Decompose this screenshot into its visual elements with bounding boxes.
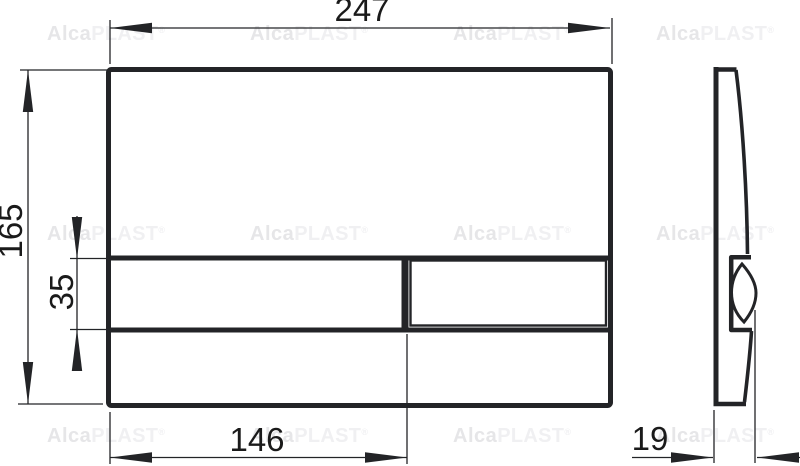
arrow-right (365, 452, 407, 462)
side-view (714, 67, 757, 406)
arrow-left-inward (757, 452, 799, 462)
plate-outline (109, 70, 611, 406)
side-button-bulge (732, 264, 757, 322)
dim-button-width-label: 146 (229, 421, 284, 458)
side-face-upper (736, 70, 748, 254)
dim-width-label: 247 (334, 0, 389, 28)
arrow-down (72, 217, 82, 259)
dimension-band-height: 35 (43, 216, 106, 371)
small-button-outline (411, 261, 607, 326)
arrow-up (72, 329, 82, 371)
dimension-button-width: 146 (110, 334, 407, 464)
arrow-top (23, 70, 33, 112)
arrow-right-inward (671, 452, 713, 462)
dimension-drawing: 247 165 35 146 (0, 0, 800, 466)
arrow-left (110, 23, 152, 33)
side-face-lower (745, 331, 752, 402)
technical-drawing-canvas: AlcaPLAST® AlcaPLAST® AlcaPLAST® AlcaPLA… (0, 0, 800, 466)
dimension-width: 247 (110, 0, 612, 64)
arrow-bottom (23, 362, 33, 404)
dim-depth-label: 19 (632, 420, 669, 457)
front-view (106, 70, 613, 406)
dimension-height: 165 (0, 70, 107, 404)
arrow-left (110, 452, 152, 462)
arrow-right (568, 23, 610, 33)
dim-band-height-label: 35 (43, 274, 80, 311)
dim-height-label: 165 (0, 203, 29, 258)
